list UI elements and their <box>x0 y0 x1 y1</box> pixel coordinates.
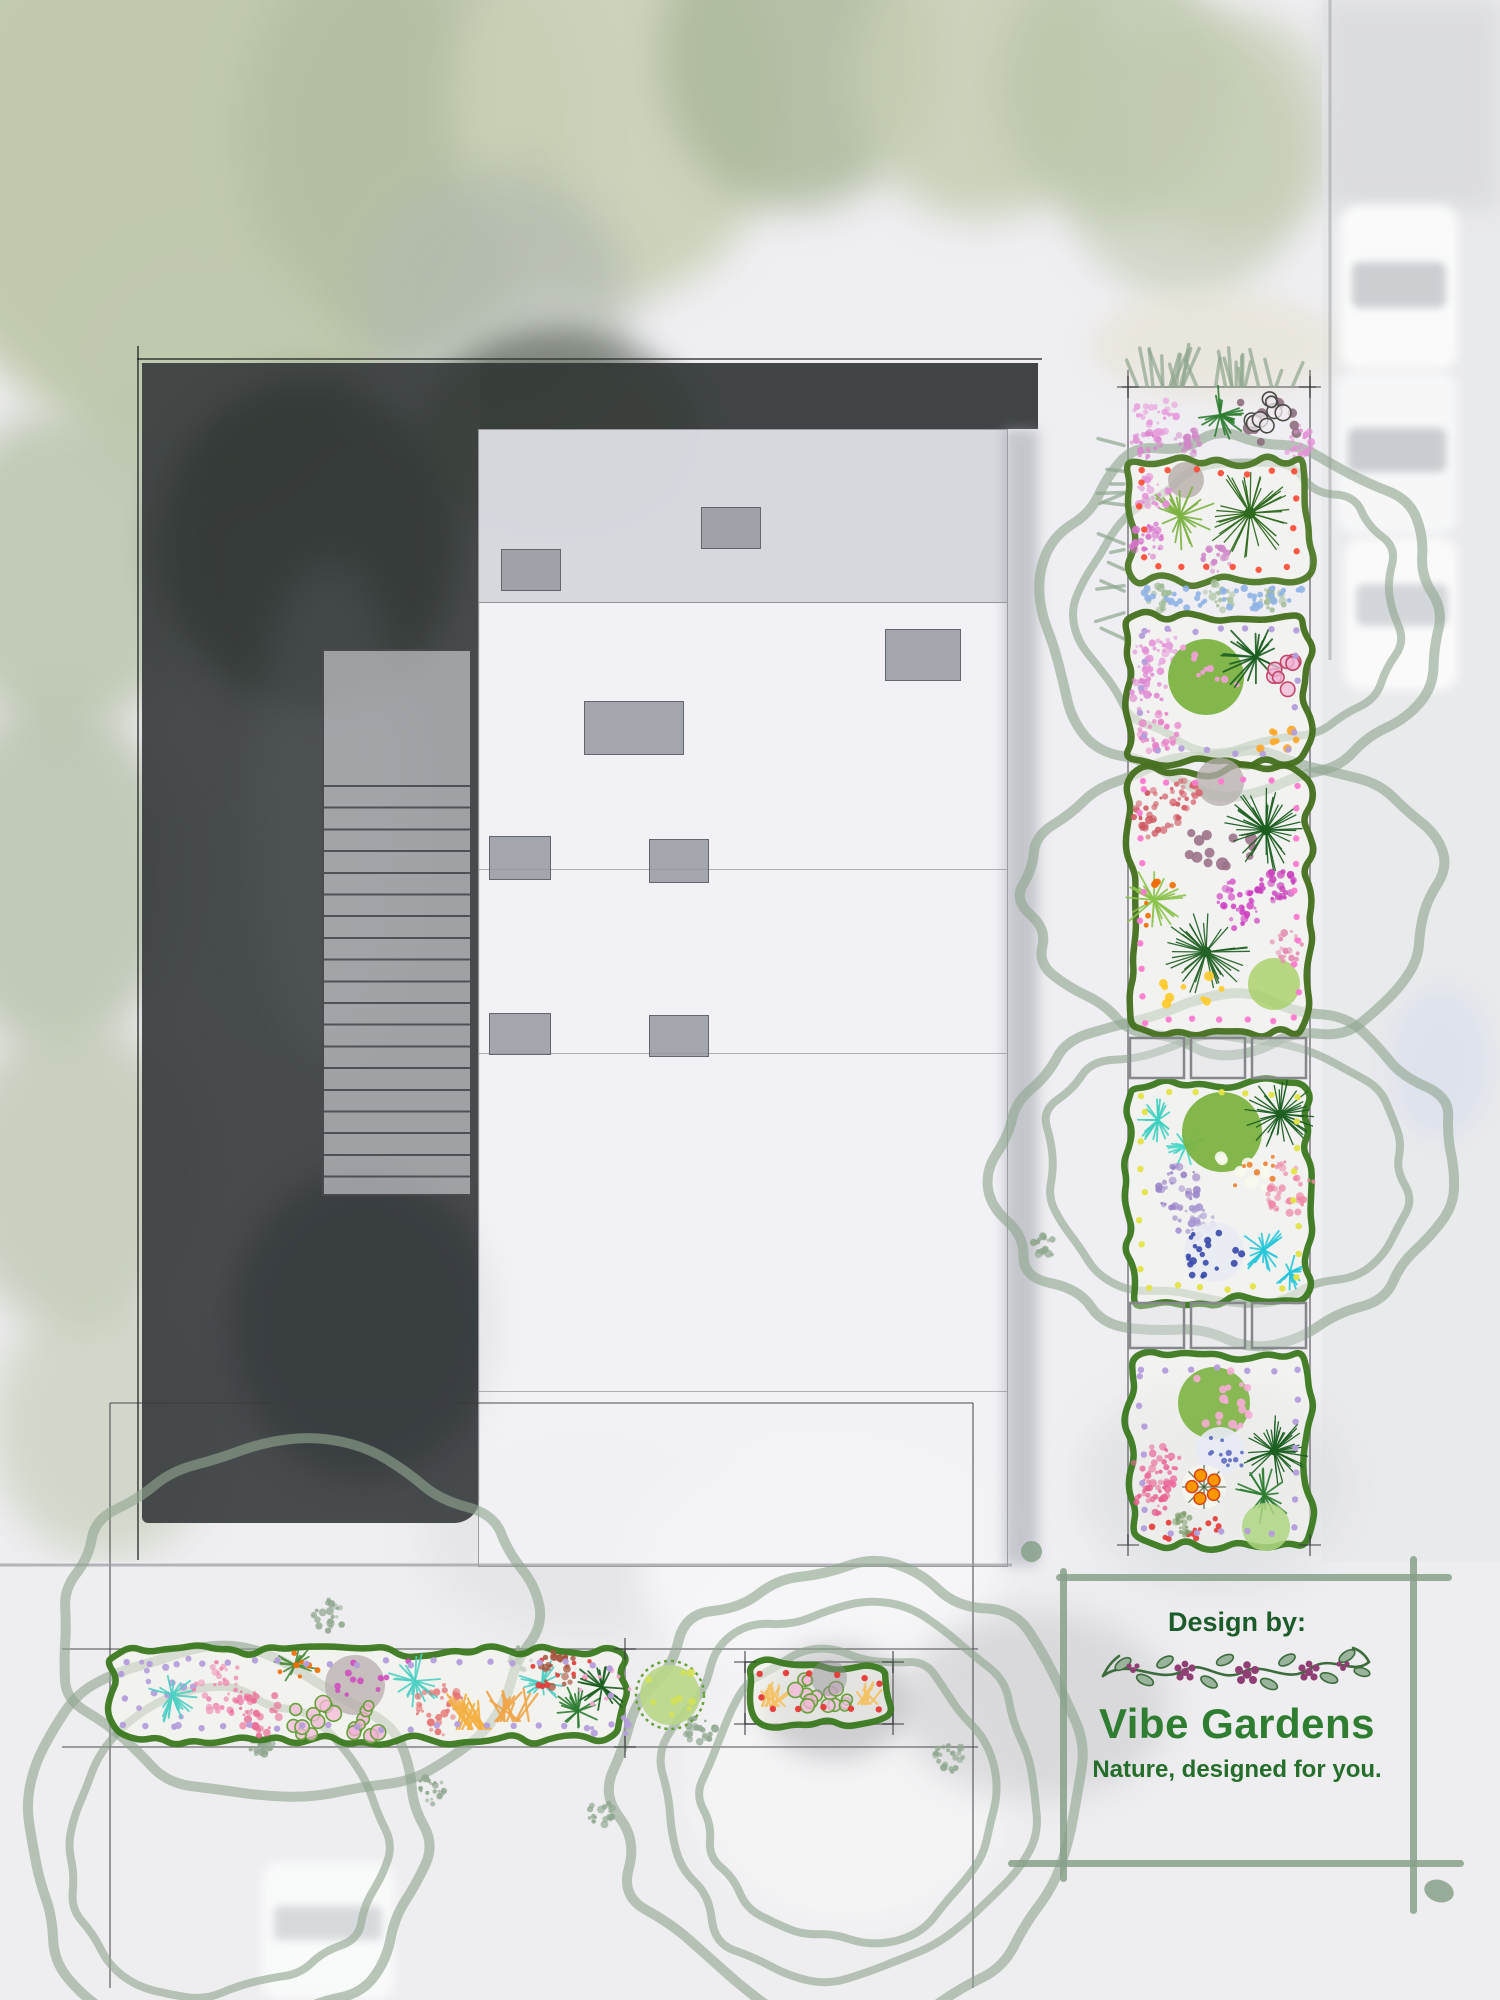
photo-blob <box>1356 584 1448 626</box>
photo-blob <box>1080 1380 1350 1590</box>
photo-blob <box>450 0 780 300</box>
brand-text-block: Design by: <box>1062 1581 1412 1861</box>
window <box>584 701 684 755</box>
staircase <box>322 649 472 1196</box>
window <box>701 507 761 549</box>
roof-outline-vertical <box>137 346 139 1560</box>
window <box>489 1013 551 1055</box>
photo-blob <box>1130 10 1340 240</box>
photo-blob <box>240 0 580 350</box>
building-section-line <box>479 1391 1007 1392</box>
photo-blob <box>1348 428 1446 472</box>
brand-frame-top <box>1056 1574 1452 1581</box>
photo-blob <box>660 0 930 210</box>
window <box>649 1015 709 1057</box>
design-by-label: Design by: <box>1168 1607 1306 1638</box>
window <box>649 839 709 883</box>
photo-blob <box>1322 0 1500 210</box>
window <box>501 549 561 591</box>
brand-frame-bottom <box>1008 1860 1464 1867</box>
roof-shadow-blob <box>230 1170 500 1480</box>
building-section-line <box>479 1053 1007 1054</box>
photo-blob <box>1090 290 1340 400</box>
photo-blob <box>1060 20 1310 300</box>
photo-blob <box>1400 0 1500 170</box>
window <box>885 629 961 681</box>
photo-blob <box>262 1862 394 2000</box>
photo-blob <box>1340 205 1458 370</box>
photo-blob <box>1352 262 1446 308</box>
photo-blob <box>760 1645 910 1760</box>
photo-blob <box>690 1630 1010 1930</box>
company-name: Vibe Gardens <box>1099 1700 1375 1748</box>
building-section-line <box>479 869 1007 870</box>
garden-plan-page: Design by: <box>0 0 1500 2000</box>
photo-blob <box>1336 372 1458 534</box>
staircase-steps <box>324 785 470 1194</box>
building-side-shadow <box>1004 429 1038 1565</box>
photo-blob <box>274 1906 382 1940</box>
photo-blob <box>1344 538 1458 690</box>
photo-blob <box>1388 985 1493 1140</box>
building-footprint <box>478 429 1008 1567</box>
floral-vine-divider <box>1097 1642 1377 1698</box>
brand-frame-dot-topleft <box>1021 1541 1042 1562</box>
photo-blob <box>850 0 1110 220</box>
photo-blob <box>1000 0 1230 220</box>
company-tagline: Nature, designed for you. <box>1092 1756 1381 1784</box>
window <box>489 836 551 880</box>
